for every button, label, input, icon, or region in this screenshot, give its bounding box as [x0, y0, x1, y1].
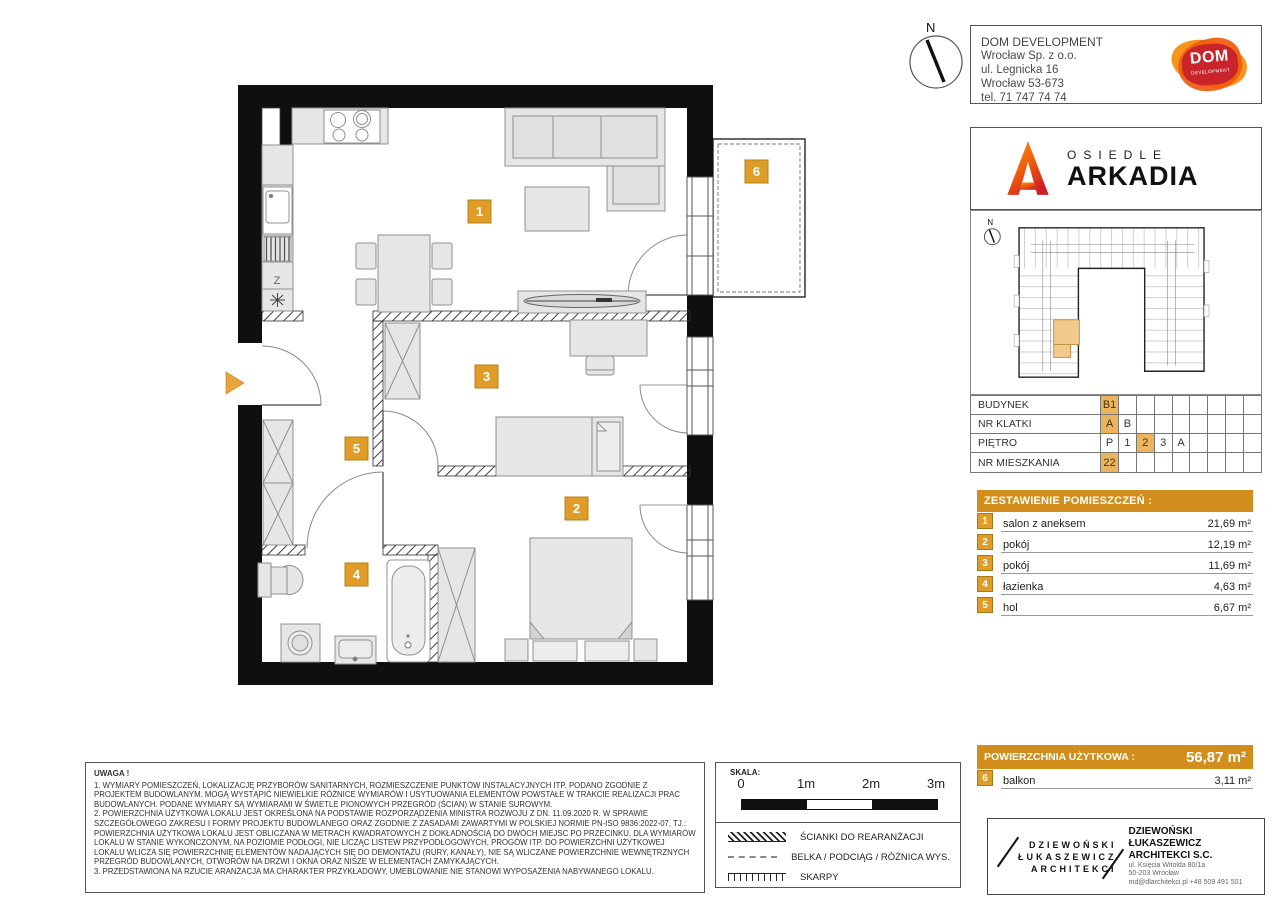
door-swings — [262, 235, 688, 553]
svg-text:4: 4 — [353, 567, 361, 582]
room-area: 21,69 m² — [1208, 518, 1251, 530]
badge-room-5: 5 — [345, 437, 368, 460]
dining-table — [356, 235, 452, 312]
svg-text:N: N — [926, 20, 935, 35]
entrance-arrow-icon — [226, 372, 244, 394]
row-label: BUDYNEK — [971, 396, 1100, 414]
wardrobe-room2 — [438, 548, 475, 662]
table-row-budynek: BUDYNEK B1 — [971, 396, 1261, 415]
legend-beam: BELKA / PODCIĄG / RÓŻNICA WYS. — [728, 849, 950, 865]
balcony-number-badge: 6 — [977, 770, 993, 786]
site-compass-icon: N — [984, 218, 1000, 245]
double-bed — [505, 538, 657, 661]
arkadia-flame-icon — [1003, 139, 1053, 199]
fridge-star-icon — [270, 293, 285, 307]
usable-area-label: POWIERZCHNIA UŻYTKOWA : — [984, 751, 1135, 763]
developer-info-box: DOM DEVELOPMENT Wrocław Sp. z o.o. ul. L… — [970, 25, 1262, 104]
cell-pietro-2: 2 — [1136, 434, 1154, 452]
room-name: pokój — [1003, 539, 1029, 551]
coffee-table — [525, 187, 589, 231]
dashed-line-symbol — [728, 856, 777, 858]
svg-text:1: 1 — [476, 204, 483, 219]
architect-name-line1: DZIEWOŃSKI ŁUKASZEWICZ — [1129, 826, 1264, 850]
balcony-door-window — [687, 177, 713, 295]
legend-rearrangeable-walls: ŚCIANKI DO REARANŻACJI — [728, 829, 950, 845]
building-outline — [1014, 228, 1209, 377]
bathroom-sink — [335, 636, 376, 664]
notes-box: UWAGA ! 1. WYMIARY POMIESZCZEŃ, LOKALIZA… — [85, 762, 705, 893]
architect-stencil-logo: DZIEWOŃSKI ŁUKASZEWICZ ARCHITEKCI — [988, 839, 1117, 875]
kitchen-sink — [263, 187, 292, 234]
room-name: pokój — [1003, 560, 1029, 572]
room-number-badge: 2 — [977, 534, 993, 550]
hatch-symbol — [728, 832, 786, 842]
architect-name-line2: ARCHITEKCI S.C. — [1129, 850, 1264, 862]
toilet — [258, 563, 303, 597]
room-area: 11,69 m² — [1208, 560, 1251, 572]
logo-subword: DEVELOPMENT — [1191, 63, 1231, 80]
hall-wardrobes — [263, 420, 293, 545]
row-label: NR KLATKI — [971, 415, 1100, 433]
balcony-area: 3,11 m² — [1215, 775, 1251, 787]
cell-budynek-b1: B1 — [1100, 396, 1118, 414]
legend-slopes: SKARPY — [728, 869, 950, 885]
badge-room-4: 4 — [345, 563, 368, 586]
table-row-pietro: PIĘTRO P 1 2 3 A — [971, 434, 1261, 453]
room-row-lazienka: 4 łazienka 4,63 m² — [977, 575, 1253, 596]
row-label: PIĘTRO — [971, 434, 1100, 452]
badge-room-1: 1 — [468, 200, 491, 223]
bathtub — [387, 560, 430, 662]
room-name: salon z aneksem — [1003, 518, 1086, 530]
balcony-row: 6 balkon 3,11 m² — [977, 769, 1253, 790]
north-compass-icon: N — [910, 20, 962, 88]
architect-city: 50-203 Wrocław — [1129, 870, 1264, 879]
building-site-plan: N — [970, 210, 1262, 395]
room-area: 12,19 m² — [1208, 539, 1251, 551]
architect-box: DZIEWOŃSKI ŁUKASZEWICZ ARCHITEKCI DZIEWO… — [987, 818, 1265, 895]
room-number-badge: 4 — [977, 576, 993, 592]
table-row-mieszkanie: NR MIESZKANIA 22 — [971, 453, 1261, 472]
architect-street: ul. Księcia Witolda 80/1a — [1129, 862, 1264, 871]
room-row-salon: 1 salon z aneksem 21,69 m² — [977, 512, 1253, 533]
table-row-klatka: NR KLATKI A B — [971, 415, 1261, 434]
estate-logo-box: OSIEDLE ARKADIA — [970, 127, 1262, 210]
slope-ticks-symbol — [728, 873, 786, 881]
wardrobe-room3 — [385, 323, 420, 399]
note-2: 2. POWIERZCHNIA UŻYTKOWA LOKALU JEST OKR… — [94, 809, 696, 867]
cooktop — [324, 110, 380, 143]
room-area: 4,63 m² — [1214, 581, 1251, 593]
window-room2 — [687, 505, 713, 600]
room-area: 6,67 m² — [1214, 602, 1251, 614]
badge-room-2: 2 — [565, 497, 588, 520]
cell-klatka-a: A — [1100, 415, 1118, 433]
note-1: 1. WYMIARY POMIESZCZEŃ, LOKALIZACJĘ PRZY… — [94, 781, 696, 810]
scale-label: SKALA: — [730, 768, 760, 777]
cell-klatka-b: B — [1118, 415, 1136, 433]
room-number-badge: 3 — [977, 555, 993, 571]
desk — [570, 320, 647, 375]
window-room3 — [687, 337, 713, 435]
row-label: NR MIESZKANIA — [971, 453, 1100, 472]
site-plan-drawing: N — [971, 211, 1261, 394]
room-row-pokoj2: 2 pokój 12,19 m² — [977, 533, 1253, 554]
room-number-badge: 1 — [977, 513, 993, 529]
room-row-hol: 5 hol 6,67 m² — [977, 596, 1253, 617]
room-name: hol — [1003, 602, 1018, 614]
usable-area-bar: POWIERZCHNIA UŻYTKOWA : 56,87 m² — [977, 745, 1253, 769]
usable-area-value: 56,87 m² — [1186, 749, 1246, 766]
svg-text:N: N — [987, 218, 993, 227]
room-number-badge: 5 — [977, 597, 993, 613]
room-row-pokoj3: 3 pokój 11,69 m² — [977, 554, 1253, 575]
svg-text:5: 5 — [353, 441, 360, 456]
washing-machine — [281, 624, 320, 662]
dom-development-logo: DOM DEVELOPMENT — [1169, 36, 1249, 94]
dishwasher — [264, 237, 291, 261]
badge-balcony-6: 6 — [745, 160, 768, 183]
balcony-name: balkon — [1003, 775, 1035, 787]
badge-room-3: 3 — [475, 365, 498, 388]
scale-and-legend-box: SKALA: 0 1m 2m 3m ŚCIANKI DO REARANŻACJI… — [715, 762, 961, 888]
architect-contact: md@dlarchitekci.pl +48 509 491 501 — [1129, 879, 1264, 888]
estate-name: ARKADIA — [1067, 163, 1199, 189]
scale-tick-1m: 1m — [797, 776, 815, 791]
scale-tick-2m: 2m — [862, 776, 880, 791]
scale-tick-0: 0 — [737, 776, 744, 791]
note-3: 3. PRZEDSTAWIONA NA RZUCIE ARANŻACJA MA … — [94, 867, 696, 877]
svg-text:6: 6 — [753, 164, 760, 179]
room-name: łazienka — [1003, 581, 1043, 593]
fridge-z-label: Z — [274, 275, 281, 287]
unit-location-table: BUDYNEK B1 NR KLATKI A B PIĘTRO P 1 2 3 … — [970, 395, 1262, 473]
svg-text:3: 3 — [483, 369, 490, 384]
single-bed — [496, 417, 623, 476]
cell-mieszkanie-22: 22 — [1100, 453, 1118, 472]
rooms-list-header: ZESTAWIENIE POMIESZCZEŃ : — [977, 490, 1253, 512]
floor-plan-sheet: N — [0, 0, 1273, 900]
scale-bar — [741, 799, 938, 810]
estate-prefix: OSIEDLE — [1067, 148, 1199, 162]
apartment-floor-plan: N — [0, 0, 965, 745]
svg-text:2: 2 — [573, 501, 580, 516]
notes-title: UWAGA ! — [94, 769, 696, 779]
tv-console — [518, 291, 646, 313]
scale-tick-3m: 3m — [927, 776, 945, 791]
shaft-niche — [262, 108, 280, 145]
